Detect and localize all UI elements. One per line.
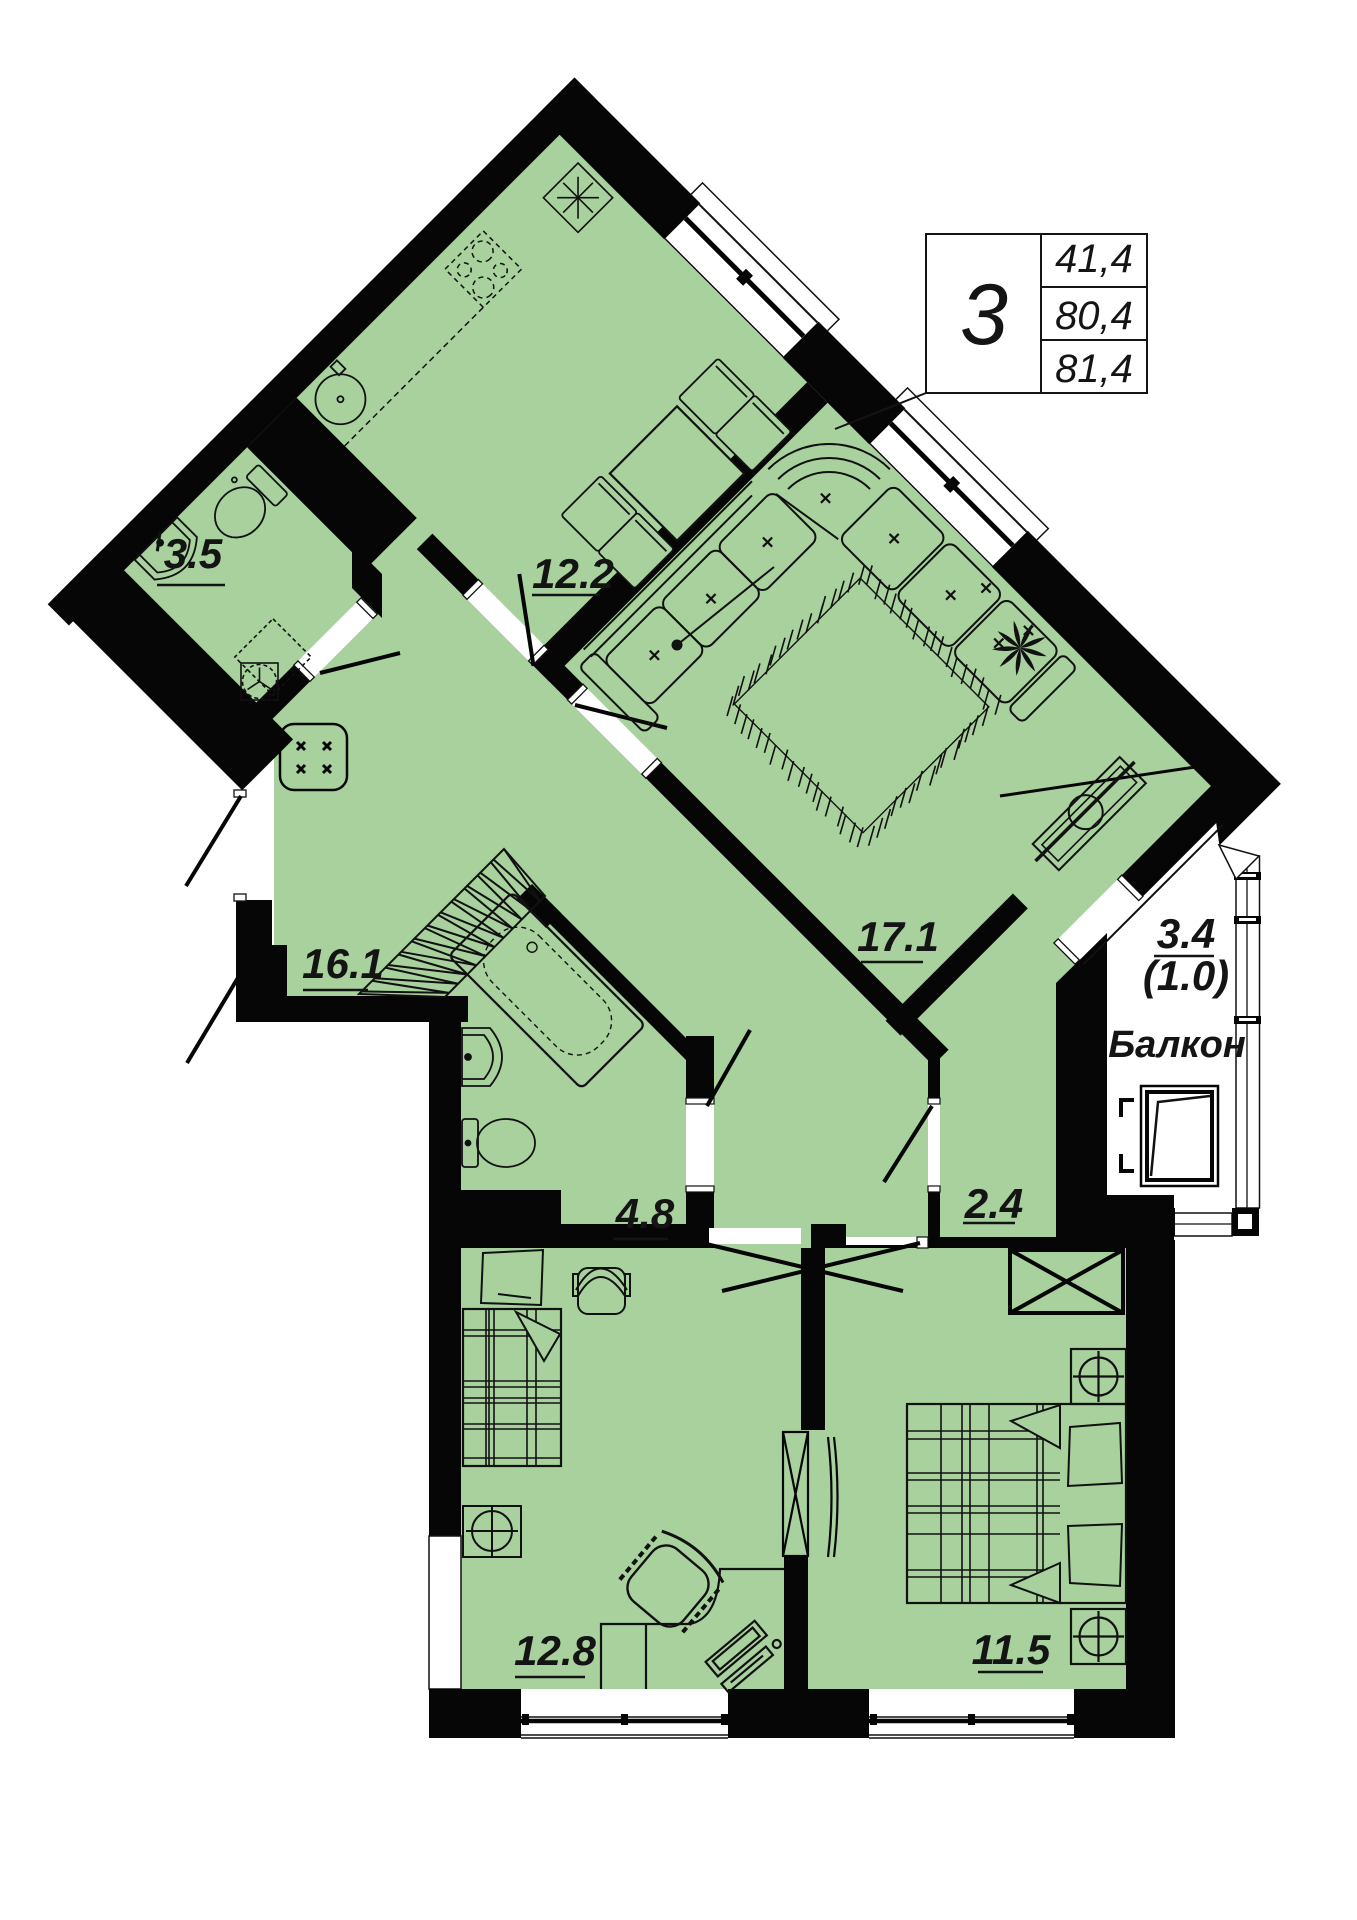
svg-text:17.1: 17.1 [857, 913, 939, 960]
svg-text:3.5: 3.5 [164, 530, 223, 577]
svg-text:12.8: 12.8 [514, 1627, 596, 1674]
svg-text:81,4: 81,4 [1055, 347, 1133, 391]
svg-text:(1.0): (1.0) [1143, 952, 1229, 999]
svg-text:4.8: 4.8 [615, 1190, 675, 1237]
svg-text:16.1: 16.1 [302, 940, 384, 987]
svg-text:3: 3 [960, 267, 1008, 363]
svg-text:41,4: 41,4 [1055, 237, 1133, 281]
svg-text:80,4: 80,4 [1055, 294, 1133, 338]
svg-text:Балкон: Балкон [1108, 1024, 1246, 1066]
svg-text:12.2: 12.2 [532, 550, 614, 597]
svg-text:11.5: 11.5 [972, 1626, 1051, 1673]
svg-text:2.4: 2.4 [964, 1180, 1023, 1227]
svg-text:3.4: 3.4 [1157, 910, 1215, 957]
